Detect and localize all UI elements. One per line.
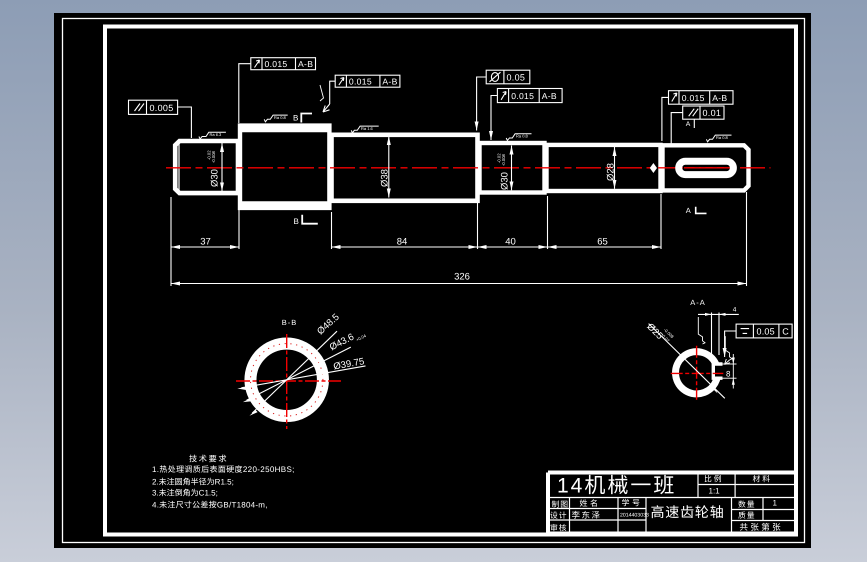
svg-text:0.015: 0.015 <box>265 59 288 69</box>
svg-text:-0.008: -0.008 <box>501 153 506 166</box>
svg-text:设计: 设计 <box>550 511 568 520</box>
svg-text:李东泽: 李东泽 <box>572 510 602 520</box>
svg-text:0.005: 0.005 <box>150 103 174 113</box>
svg-text:84: 84 <box>397 237 408 248</box>
svg-text:A: A <box>686 121 691 128</box>
svg-text:学号: 学号 <box>622 499 643 508</box>
svg-text:40: 40 <box>505 237 516 248</box>
svg-text:Ra 0.8: Ra 0.8 <box>516 134 529 139</box>
svg-text:B: B <box>293 113 298 122</box>
svg-text:材料: 材料 <box>753 475 773 484</box>
svg-text:制图: 制图 <box>552 500 570 509</box>
svg-text:0.05: 0.05 <box>507 73 526 83</box>
svg-text:高速齿轮轴: 高速齿轮轴 <box>651 504 725 520</box>
svg-text:2014403033: 2014403033 <box>620 513 649 519</box>
svg-text:技术要求: 技术要求 <box>189 455 228 464</box>
svg-text:4: 4 <box>733 307 737 314</box>
svg-text:37: 37 <box>200 237 211 248</box>
svg-text:A-A: A-A <box>690 298 706 307</box>
svg-text:65: 65 <box>597 237 608 248</box>
svg-text:3.未注倒角为C1.5;: 3.未注倒角为C1.5; <box>152 488 218 497</box>
svg-text:A-B: A-B <box>382 76 397 86</box>
svg-text:比例: 比例 <box>704 475 724 484</box>
svg-text:326: 326 <box>454 272 470 283</box>
svg-text:Ø30: Ø30 <box>500 172 511 190</box>
svg-text:姓名: 姓名 <box>580 499 601 508</box>
svg-text:Ra 1.6: Ra 1.6 <box>361 126 374 131</box>
svg-text:A-B: A-B <box>298 59 313 69</box>
svg-text:-0.008: -0.008 <box>211 150 216 163</box>
svg-text:1:1: 1:1 <box>709 487 721 496</box>
svg-text:Ra 0.8: Ra 0.8 <box>274 115 287 120</box>
svg-text:-0.02: -0.02 <box>497 153 502 163</box>
svg-text:数量: 数量 <box>738 500 756 509</box>
svg-text:B: B <box>294 217 299 226</box>
svg-text:B-B: B-B <box>282 318 298 327</box>
svg-text:0.015: 0.015 <box>349 76 372 86</box>
svg-text:Ra 0.8: Ra 0.8 <box>716 135 729 140</box>
svg-text:Ø28: Ø28 <box>606 163 617 181</box>
svg-text:8: 8 <box>726 370 731 379</box>
svg-text:0.01: 0.01 <box>703 108 722 118</box>
svg-text:Ra 6.3: Ra 6.3 <box>210 132 223 137</box>
svg-text:-0.02: -0.02 <box>207 150 212 160</box>
svg-text:Ø30: Ø30 <box>210 169 221 187</box>
svg-text:共 张 第 张: 共 张 第 张 <box>740 522 782 532</box>
svg-text:0.05: 0.05 <box>757 327 775 337</box>
svg-text:1.热处理调质后表面硬度220-250HBS;: 1.热处理调质后表面硬度220-250HBS; <box>152 465 295 474</box>
svg-text:0.015: 0.015 <box>682 93 705 103</box>
svg-text:2.未注圆角半径为R1.5;: 2.未注圆角半径为R1.5; <box>152 478 234 487</box>
svg-text:Ø38: Ø38 <box>380 169 391 187</box>
svg-text:C: C <box>782 327 789 337</box>
svg-text:A: A <box>686 206 691 215</box>
svg-text:4.未注尺寸公差按GB/T1804-m,: 4.未注尺寸公差按GB/T1804-m, <box>152 501 268 510</box>
svg-text:A-B: A-B <box>712 93 727 103</box>
svg-text:0.015: 0.015 <box>511 91 534 101</box>
svg-text:A-B: A-B <box>542 91 557 101</box>
svg-text:审核: 审核 <box>550 524 568 533</box>
svg-text:质量: 质量 <box>738 511 756 520</box>
svg-text:1: 1 <box>773 499 778 508</box>
svg-text:14机械一班: 14机械一班 <box>557 475 676 498</box>
